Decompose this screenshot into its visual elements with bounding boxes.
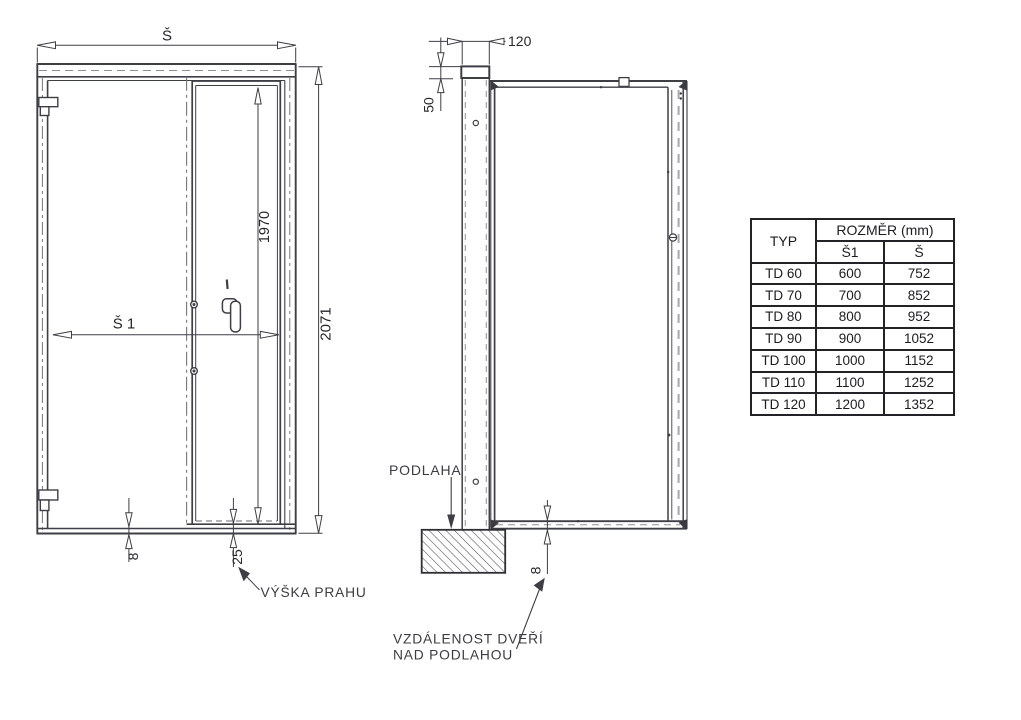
table-cell-s: 1352 (884, 393, 954, 415)
table-cell-s1: 1000 (816, 350, 884, 372)
dim-leaf-height-label: 1970 (257, 211, 273, 243)
dim-threshold-label: 25 (229, 549, 245, 565)
table-row: TD 100 1000 1152 (751, 350, 954, 372)
table-cell-typ: TD 70 (751, 284, 816, 306)
size-table: TYP ROZMĚR (mm) Š1 Š TD 60 600 752 TD 70… (750, 218, 955, 416)
dim-top-offset-label: 50 (421, 97, 437, 113)
fixing-hole-bottom (473, 479, 478, 484)
table-cell-s1: 1100 (816, 372, 884, 394)
hinge-bottom (39, 490, 58, 500)
table-cell-typ: TD 100 (751, 350, 816, 372)
dim-clear-width-label: Š 1 (113, 316, 136, 333)
table-header-dimension: ROZMĚR (mm) (816, 219, 954, 241)
table-cell-typ: TD 110 (751, 372, 816, 394)
leader-arrow (238, 567, 250, 582)
fixing-hole-top (473, 120, 478, 125)
table-cell-s: 852 (884, 284, 954, 306)
threshold-note: VÝŠKA PRAHU (261, 584, 367, 600)
table-cell-s1: 800 (816, 306, 884, 328)
floor-gap-note-line1: VZDÁLENOST DVEŘÍ (393, 631, 544, 647)
table-row: TD 70 700 852 (751, 284, 954, 306)
table-cell-s1: 700 (816, 284, 884, 306)
top-latch (619, 78, 629, 87)
table-cell-s1: 900 (816, 328, 884, 350)
table-cell-typ: TD 80 (751, 306, 816, 328)
table-cell-s: 1152 (884, 350, 954, 372)
table-row: TD 120 1200 1352 (751, 393, 954, 415)
table-cell-s: 1052 (884, 328, 954, 350)
dim-total-height-label: 2071 (318, 307, 335, 340)
dim-bottom-gap-label: 8 (125, 552, 141, 560)
table-cell-typ: TD 90 (751, 328, 816, 350)
front-view-hardware (39, 98, 241, 511)
floor-gap-note-line2: NAD PODLAHOU (393, 648, 513, 663)
table-cell-s: 1252 (884, 372, 954, 394)
table-header-s: Š (884, 241, 954, 263)
table-row: TD 90 900 1052 (751, 328, 954, 350)
frame-cap (461, 66, 489, 78)
dim-floor-gap-label: 8 (528, 566, 544, 574)
table-row: TD 80 800 952 (751, 306, 954, 328)
floor-label: PODLAHA (389, 462, 462, 478)
door-technical-drawing: Š 2071 1970 Š 1 8 25 VÝŠKA PRAHU 120 50 … (0, 0, 1021, 720)
dim-depth-label: 120 (508, 33, 532, 49)
table-cell-typ: TD 120 (751, 393, 816, 415)
table-header-typ: TYP (751, 219, 816, 263)
table-cell-typ: TD 60 (751, 263, 816, 285)
floor-leader-arrow (447, 515, 455, 530)
table-cell-s1: 1200 (816, 393, 884, 415)
hinge-top (39, 98, 58, 107)
table-cell-s: 952 (884, 306, 954, 328)
table-row: TD 110 1100 1252 (751, 372, 954, 394)
table-cell-s: 752 (884, 263, 954, 285)
table-cell-s1: 600 (816, 263, 884, 285)
dim-width-label: Š (162, 28, 172, 45)
table-row: TD 60 600 752 (751, 263, 954, 285)
floor-block (422, 530, 506, 573)
keyhole (227, 280, 228, 290)
side-view (422, 66, 687, 572)
table-header-s1: Š1 (816, 241, 884, 263)
